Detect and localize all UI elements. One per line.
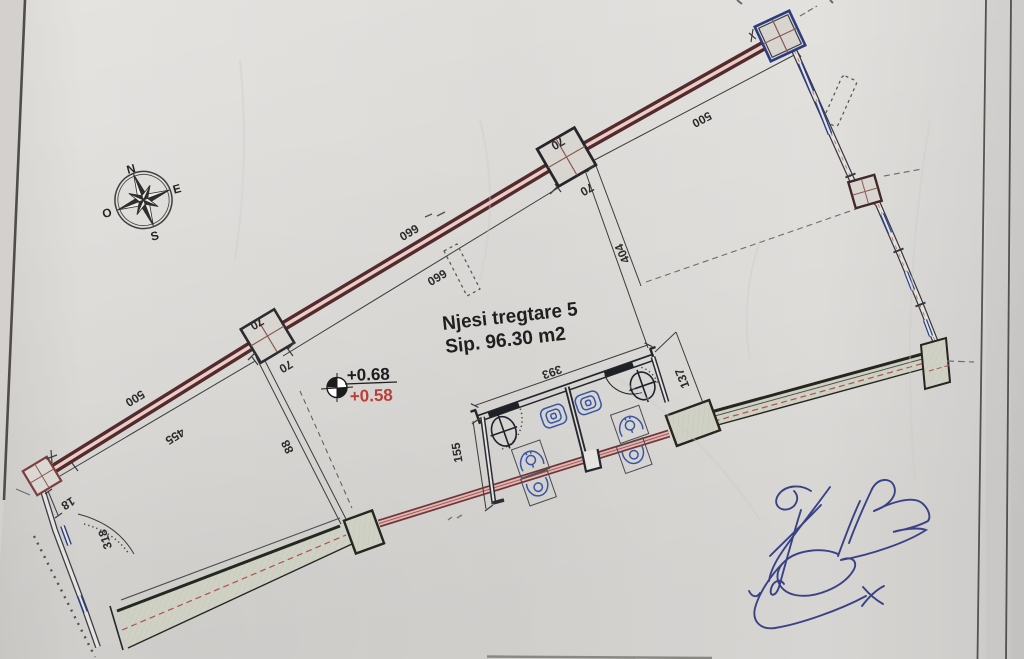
svg-text:+0.58: +0.58 <box>349 386 393 406</box>
